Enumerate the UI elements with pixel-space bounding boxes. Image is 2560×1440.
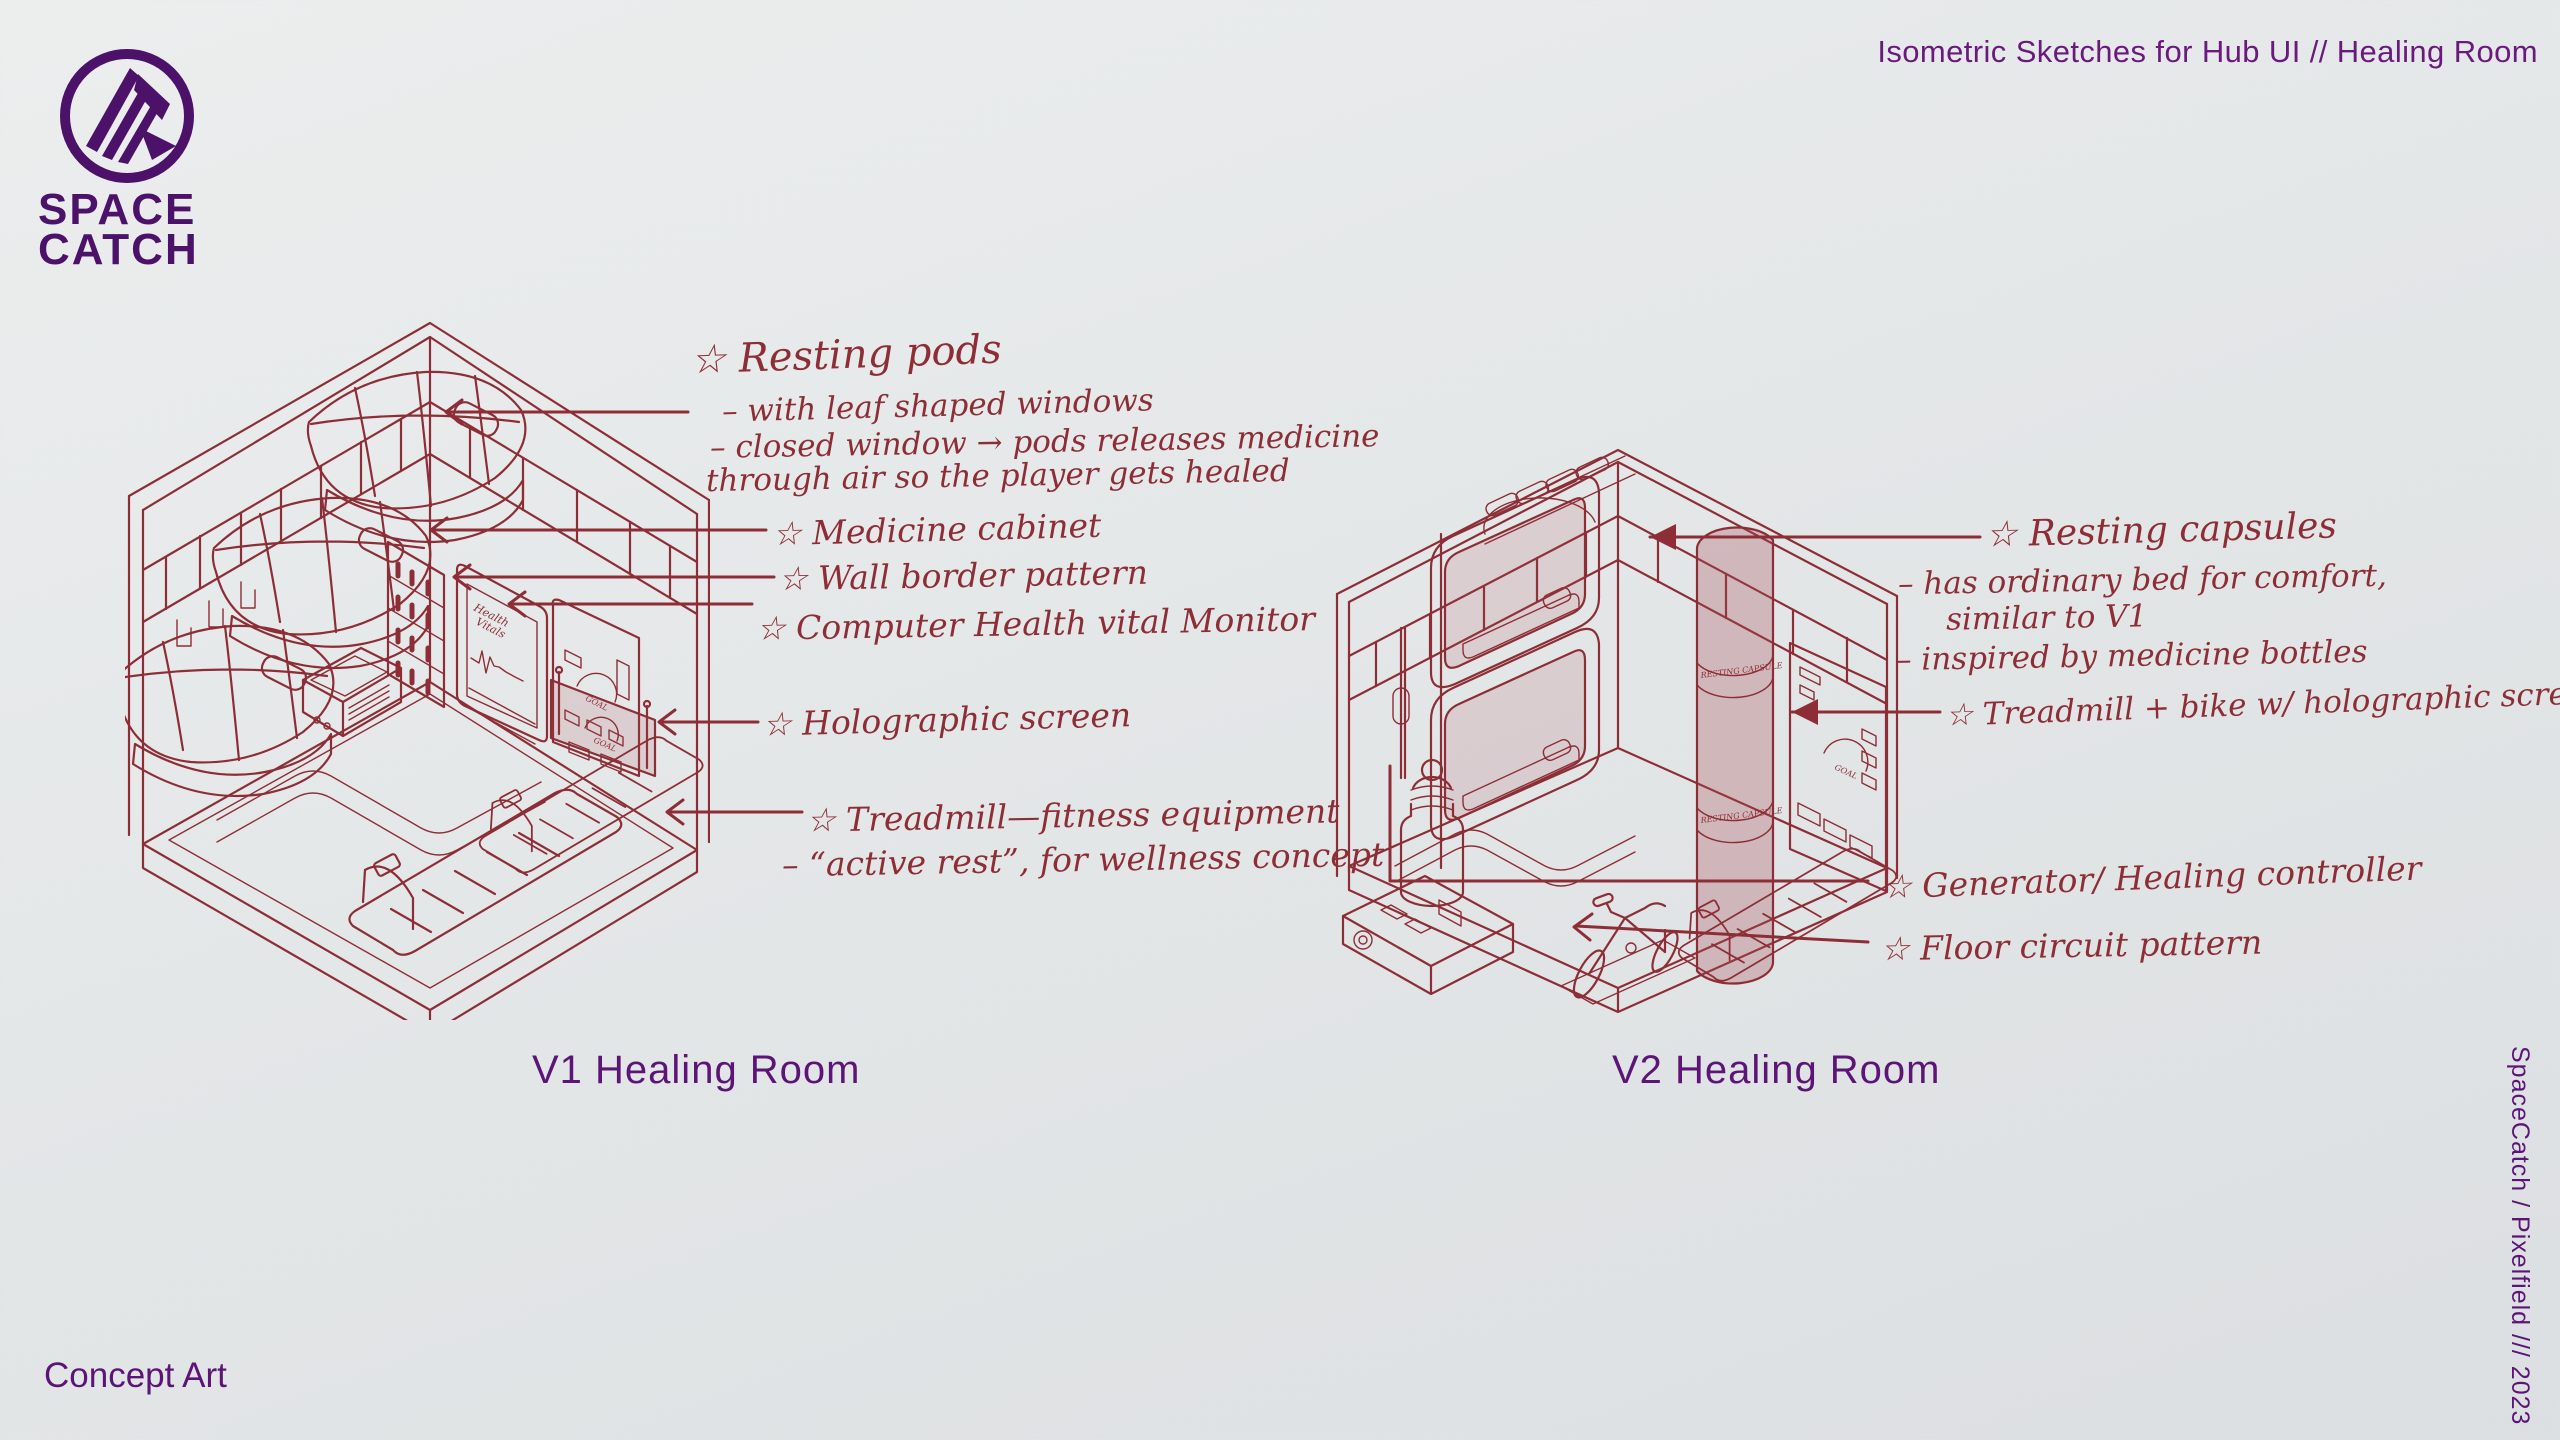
annotation-v2-similar-to-v1: similar to V1 [1946,598,2148,638]
credit-vertical: SpaceCatch / Pixelfield /// 2023 [2505,1046,2534,1425]
v2-figure-label: V2 Healing Room [1612,1048,1941,1093]
concept-art-board: { "header": { "title": "Isometric Sketch… [0,0,2560,1440]
v1-figure-label: V1 Healing Room [532,1048,861,1093]
annotation-v2-floor-circuit: ☆ Floor circuit pattern [1880,923,2263,969]
concept-art-caption: Concept Art [44,1356,227,1396]
annotation-v1-wall-border: ☆ Wall border pattern [778,553,1149,598]
